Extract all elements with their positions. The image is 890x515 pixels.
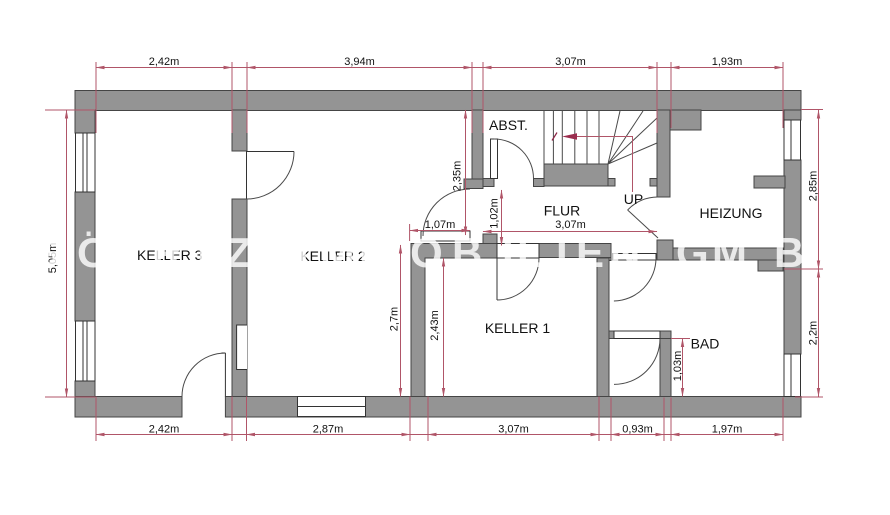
svg-text:KELLER 1: KELLER 1	[485, 320, 551, 336]
svg-text:I: I	[556, 229, 568, 276]
svg-text:FLUR: FLUR	[544, 203, 581, 219]
svg-text:ABST.: ABST.	[489, 117, 528, 133]
svg-text:3,07m: 3,07m	[555, 56, 586, 68]
svg-text:1,03m: 1,03m	[672, 351, 684, 382]
svg-text:BAD: BAD	[691, 336, 720, 352]
svg-text:M: M	[359, 229, 394, 276]
svg-text:Z: Z	[226, 229, 252, 276]
svg-text:M: M	[320, 229, 355, 276]
svg-text:G: G	[676, 229, 709, 276]
svg-text:I: I	[297, 229, 309, 276]
svg-text:0,93m: 0,93m	[622, 424, 653, 436]
svg-text:2,7m: 2,7m	[389, 307, 401, 331]
svg-text:R: R	[152, 229, 182, 276]
svg-text:1,97m: 1,97m	[712, 424, 743, 436]
svg-text:B: B	[452, 229, 482, 276]
svg-text:2,85m: 2,85m	[808, 171, 820, 202]
svg-text:N: N	[610, 229, 640, 276]
svg-text:B: B	[774, 229, 804, 276]
svg-text:1,93m: 1,93m	[712, 56, 743, 68]
svg-text:M: M	[712, 229, 747, 276]
svg-text:G: G	[28, 229, 61, 276]
svg-text:2,87m: 2,87m	[313, 424, 344, 436]
svg-text:2,43m: 2,43m	[429, 310, 441, 341]
svg-text:I: I	[502, 229, 514, 276]
svg-text:H: H	[818, 229, 848, 276]
svg-text:E: E	[576, 229, 604, 276]
svg-text:UP: UP	[624, 191, 643, 207]
svg-text:T: T	[190, 229, 216, 276]
svg-text:2,2m: 2,2m	[808, 321, 820, 345]
svg-text:3,94m: 3,94m	[344, 56, 375, 68]
svg-text:2,42m: 2,42m	[149, 424, 180, 436]
svg-text:O: O	[410, 229, 443, 276]
svg-text:3,07m: 3,07m	[498, 424, 529, 436]
svg-text:HEIZUNG: HEIZUNG	[700, 205, 763, 221]
svg-text:L: L	[517, 229, 543, 276]
svg-text:2,35m: 2,35m	[452, 161, 464, 192]
svg-text:2,42m: 2,42m	[149, 56, 180, 68]
svg-text:Ö: Ö	[77, 229, 110, 276]
svg-text:1,02m: 1,02m	[489, 198, 501, 229]
